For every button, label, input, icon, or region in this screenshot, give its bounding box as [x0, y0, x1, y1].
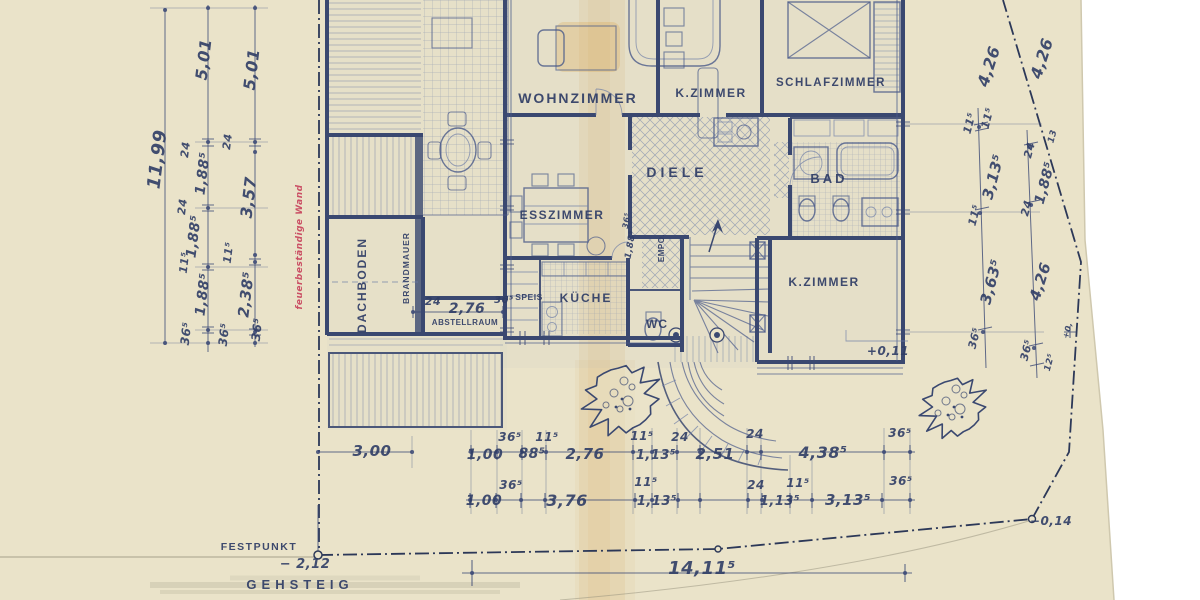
garage-roof-hatch — [329, 354, 501, 426]
dimension-label: 11⁵ — [535, 430, 558, 444]
dimension-label: 3,00 — [352, 442, 391, 460]
dimension-label: 24 — [220, 133, 235, 151]
site-label-gehsteig: GEHSTEIG — [246, 577, 353, 592]
room-label-diele: DIELE — [646, 164, 707, 180]
dimension-label: 36⁵ — [888, 426, 911, 440]
room-label-kzimmer-bottom: K.ZIMMER — [788, 275, 859, 289]
dimension-label: 24 — [671, 430, 689, 444]
room-label-empore: EMPO. — [657, 234, 666, 262]
dimension-label: 11⁵ — [630, 429, 653, 443]
boundary-point — [715, 546, 721, 552]
dimension-label: 24 — [178, 141, 193, 159]
room-label-kzimmer-top: K.ZIMMER — [675, 86, 746, 100]
tree-dot — [615, 406, 618, 409]
dimension-label: 11⁵ — [177, 251, 193, 274]
elevation-label: − 2,12 — [280, 557, 331, 572]
dimension-label: 2,76 — [449, 301, 486, 317]
room-label-bad: BAD — [810, 171, 847, 186]
site-label-festpunkt: FESTPUNKT — [221, 541, 298, 553]
dimension-label: 1,00 — [467, 447, 504, 463]
dimension-label: 1,13⁵ — [760, 494, 800, 509]
dimension-label: 1,13⁵ — [636, 448, 676, 463]
dimension-label: 36⁵ — [499, 478, 522, 492]
dimension-label: 11⁵ — [786, 476, 809, 490]
elevation-label: 14,11⁵ — [668, 558, 736, 579]
bad-tile-hatch — [792, 142, 900, 236]
dimension-label: 24 — [175, 198, 190, 216]
dimension-label: 24 — [425, 295, 441, 308]
dimension-label: 88⁵ — [518, 446, 545, 462]
room-label-schlafzimmer: SCHLAFZIMMER — [776, 77, 886, 89]
room-label-esszimmer: ESSZIMMER — [520, 208, 605, 222]
dimension-label: 4,38⁵ — [798, 443, 848, 462]
room-label-speis: SPEIS — [515, 292, 543, 302]
floor-plan-drawing: WOHNZIMMERK.ZIMMERSCHLAFZIMMERDIELEBADES… — [0, 0, 1200, 600]
wall-band-hatch — [329, 336, 503, 350]
tree-dot — [947, 414, 950, 417]
bad-corridor-nook-hatch — [774, 142, 789, 198]
note-feuerbestaendige-wand: feuerbeständige Wand — [295, 184, 305, 309]
dimension-label: 11⁵ — [634, 475, 657, 489]
dimension-label: 36⁵ — [249, 317, 266, 342]
tree-dot — [953, 406, 956, 409]
tree-dot — [629, 408, 632, 411]
dimension-label: 36⁵ — [178, 321, 195, 346]
room-label-wohnzimmer: WOHNZIMMER — [518, 90, 638, 106]
tree-dot — [961, 416, 964, 419]
dimension-label: 3,13⁵ — [825, 491, 871, 509]
dimension-label: 24 — [747, 478, 765, 492]
dimension-label: 1,00 — [466, 493, 503, 509]
room-label-kueche: KÜCHE — [560, 290, 613, 305]
dimension-label: 2,76 — [565, 445, 604, 463]
tree-dot — [621, 398, 624, 401]
room-label-abstellraum: ABSTELLRAUM — [432, 318, 498, 327]
dimension-label: 3,76 — [546, 491, 587, 510]
dimension-label: 36⁵ — [889, 474, 912, 488]
dimension-label: 36⁵ — [216, 322, 233, 347]
elevation-label: −0,14 — [1030, 514, 1072, 528]
room-label-brandmauer: BRANDMAUER — [401, 232, 411, 304]
dimension-label: 36⁵ — [498, 430, 521, 444]
dimension-label: 2,51 — [695, 445, 734, 463]
dimension-label: 1,13⁵ — [637, 494, 677, 509]
scanned-floor-plan-page: WOHNZIMMERK.ZIMMERSCHLAFZIMMERDIELEBADES… — [0, 0, 1200, 600]
room-label-dachboden: DACHBODEN — [355, 237, 369, 333]
dimension-label: +0,11 — [867, 344, 909, 358]
dimension-label: 36⁵ — [494, 295, 514, 306]
room-label-wc: WC — [646, 317, 668, 331]
dimension-label: 24 — [746, 427, 764, 441]
attic-floorboards-hatch — [329, 137, 413, 217]
dimension-label: 11⁵ — [221, 241, 237, 264]
roof-hatch-top-left — [329, 2, 421, 133]
